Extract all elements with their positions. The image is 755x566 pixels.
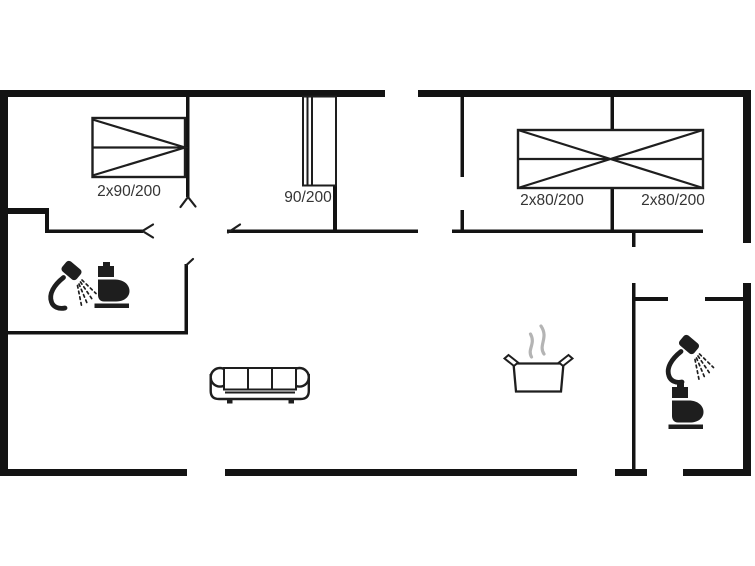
shower-icon	[668, 333, 713, 382]
toilet-icon	[95, 262, 130, 308]
cooking-pot-steam-icon	[505, 326, 573, 392]
toilet-icon	[669, 383, 704, 429]
floor-plan: 2x90/200 90/200 2x80/200 2x80/200	[0, 0, 755, 566]
bed-size-label-left: 2x90/200	[74, 184, 184, 200]
single-bed-middle-icon	[303, 97, 336, 186]
bed-size-label-right-b: 2x80/200	[618, 193, 728, 209]
floor-plan-drawing	[0, 0, 755, 566]
bed-size-label-right-a: 2x80/200	[497, 193, 607, 209]
bed-size-label-middle: 90/200	[253, 190, 363, 206]
door-swing-marks	[143, 197, 241, 265]
sofa-icon	[211, 368, 309, 404]
shower-icon	[51, 259, 96, 308]
double-bed-right-icon	[518, 130, 703, 188]
double-bed-left-icon	[93, 118, 186, 177]
